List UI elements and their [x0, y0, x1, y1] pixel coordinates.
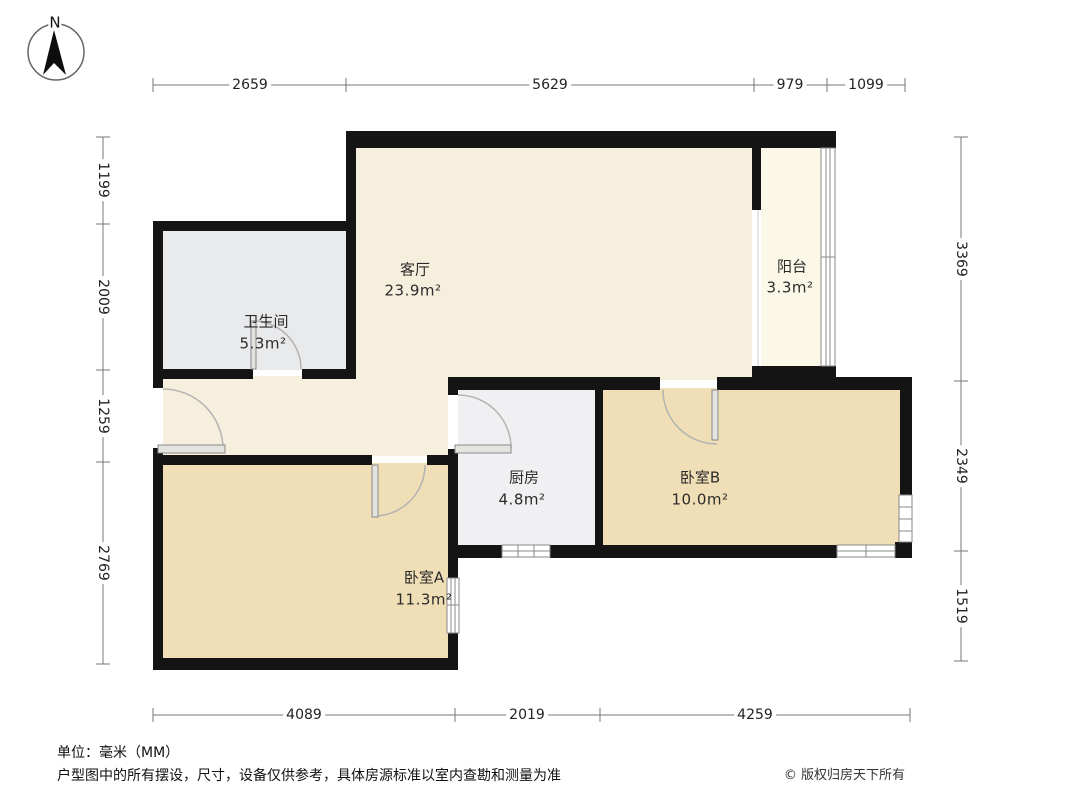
- dim-left-3: 2769: [96, 542, 110, 584]
- room-area-balcony: 3.3m²: [767, 281, 814, 296]
- dim-right-2: 1519: [954, 585, 968, 627]
- room-label-bedroom-a: 卧室A: [404, 571, 444, 586]
- bedroom-b-right-window: [899, 495, 912, 542]
- dim-left-2: 1259: [96, 395, 110, 437]
- wall-left-upper: [153, 221, 163, 388]
- wall-kitchen-left-upper: [448, 377, 458, 395]
- balcony-window: [821, 148, 835, 366]
- dim-top-1: 5629: [529, 78, 571, 92]
- bedroom-a-floor: [163, 463, 449, 659]
- wall-top: [346, 131, 836, 148]
- wall-mid-horizontal-right: [717, 377, 912, 390]
- wall-bathroom-top: [153, 221, 356, 231]
- dim-right-1: 2349: [954, 445, 968, 487]
- copyright-note: © 版权归房天下所有: [784, 768, 905, 784]
- room-area-kitchen: 4.8m²: [499, 493, 546, 508]
- wall-bedroomb-right-upper: [900, 377, 912, 495]
- wall-bedrooma-top-right: [427, 455, 450, 465]
- floorplan-svg: [0, 0, 1066, 800]
- bedroom-b-bottom-window: [837, 545, 895, 557]
- room-label-kitchen: 厨房: [509, 471, 539, 486]
- wall-living-left: [346, 131, 356, 379]
- room-area-bathroom: 5.3m²: [240, 337, 287, 352]
- dim-top-0: 2659: [229, 78, 271, 92]
- wall-bathroom-bottom-right: [302, 369, 356, 379]
- dim-top-2: 979: [774, 78, 807, 92]
- wall-bedrooma-bottom: [153, 658, 458, 670]
- room-area-living: 23.9m²: [384, 284, 441, 299]
- wall-balcony-stub: [752, 146, 761, 210]
- compass-north-label: N: [48, 16, 61, 31]
- hallway-floor: [163, 376, 448, 456]
- room-label-balcony: 阳台: [777, 260, 807, 275]
- room-label-bedroom-b: 卧室B: [680, 471, 720, 486]
- wall-kitchen-bottom-right: [550, 545, 603, 558]
- compass-north-icon: [28, 24, 84, 80]
- dim-bottom-1: 2019: [506, 708, 548, 722]
- wall-bedrooma-right-upper: [448, 455, 458, 578]
- room-label-living: 客厅: [400, 263, 430, 278]
- wall-bedroomb-bottom-left: [603, 545, 837, 558]
- dim-left-1: 2009: [96, 276, 110, 318]
- unit-note: 单位：毫米（MM）: [57, 745, 179, 762]
- wall-bedrooma-top-left: [163, 455, 372, 465]
- dim-left-0: 1199: [96, 159, 110, 201]
- dim-right-0: 3369: [954, 238, 968, 280]
- disclaimer-note: 户型图中的所有摆设，尺寸，设备仅供参考，具体房源标准以室内查勘和测量为准: [57, 768, 561, 785]
- kitchen-floor: [458, 388, 596, 546]
- dim-top-3: 1099: [845, 78, 887, 92]
- floorplan-canvas: N 2659 5629 979 1099 1199 2009 1259 2769…: [0, 0, 1066, 800]
- wall-kitchen-bedroomb-divider: [595, 388, 603, 546]
- wall-bathroom-bottom-left: [153, 369, 253, 379]
- wall-bedroomb-right-corner: [895, 542, 912, 558]
- dim-bottom-0: 4089: [283, 708, 325, 722]
- wall-left-lower: [153, 448, 163, 670]
- room-label-bathroom: 卫生间: [243, 315, 288, 330]
- bedroom-b-floor: [603, 388, 901, 546]
- room-area-bedroom-a: 11.3m²: [395, 593, 452, 608]
- dim-bottom-2: 4259: [734, 708, 776, 722]
- dimension-line-right: [954, 137, 968, 661]
- wall-mid-horizontal-left: [448, 377, 660, 390]
- kitchen-window: [502, 545, 550, 557]
- room-area-bedroom-b: 10.0m²: [671, 493, 728, 508]
